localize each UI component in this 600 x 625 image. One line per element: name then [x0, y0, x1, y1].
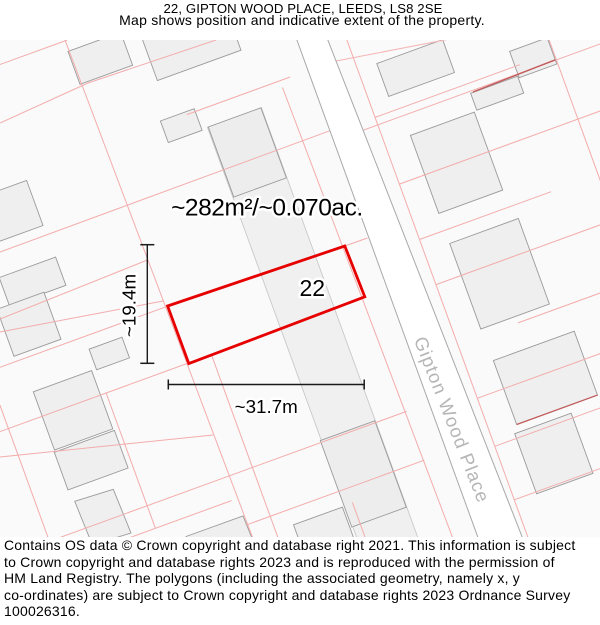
svg-text:22: 22 — [300, 275, 326, 301]
svg-text:~19.4m: ~19.4m — [118, 274, 139, 337]
svg-text:~31.7m: ~31.7m — [235, 396, 298, 417]
svg-text:~282m²/~0.070ac.: ~282m²/~0.070ac. — [171, 195, 363, 222]
